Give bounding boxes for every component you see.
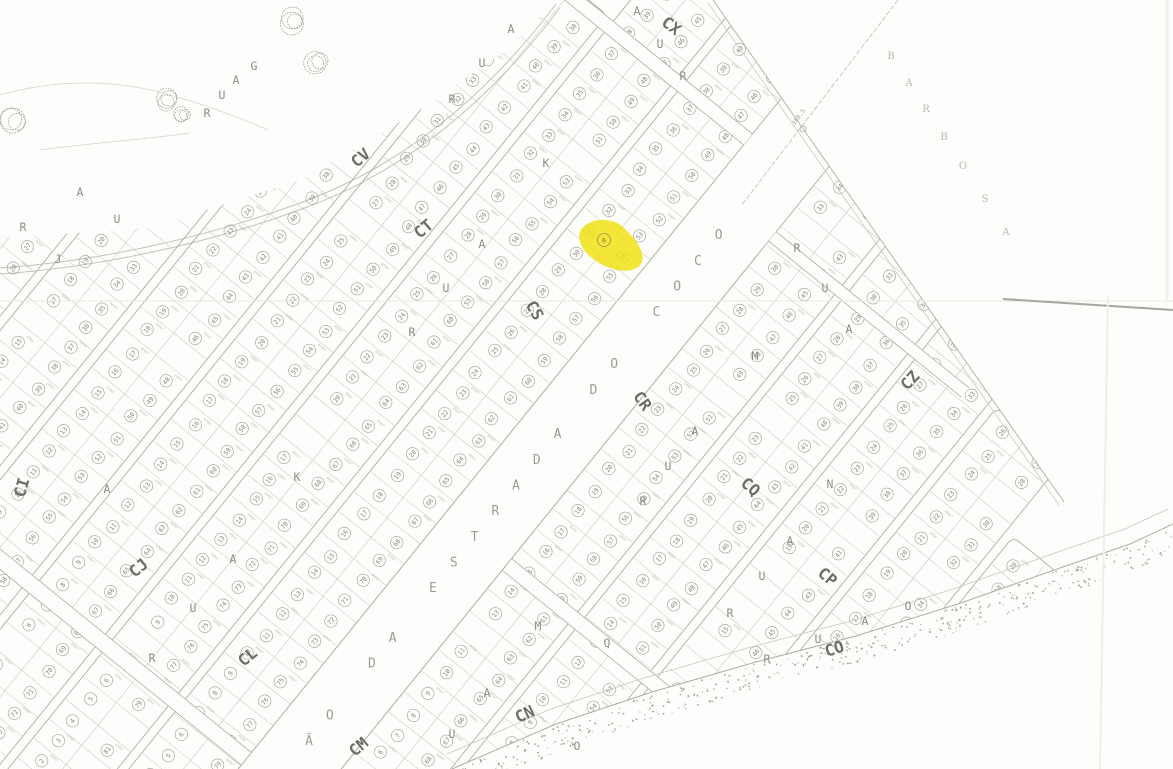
street-name-letter: A bbox=[484, 686, 491, 700]
street-name-letter: G bbox=[251, 59, 258, 73]
street-name-letter: U bbox=[665, 459, 672, 473]
road-name-letter: T bbox=[471, 530, 479, 545]
street-name-letter: A bbox=[692, 424, 699, 438]
scanned-cadastral-map: 1600m²44600m²243600m²4600m²415600m²40600… bbox=[0, 0, 1173, 769]
street-name-letter: U bbox=[822, 281, 829, 295]
street-name-letter: K bbox=[543, 156, 550, 170]
street-name-letter: M bbox=[752, 349, 759, 363]
road-name-letter: C bbox=[652, 305, 660, 320]
street-name-letter: A bbox=[233, 73, 240, 87]
street-name-letter: R bbox=[794, 241, 801, 255]
street-name-letter: U bbox=[657, 37, 664, 51]
road-name-letter: D bbox=[533, 453, 541, 468]
street-name-letter: R bbox=[204, 106, 211, 120]
street-name-letter: R bbox=[149, 651, 156, 665]
street-name-letter: O bbox=[574, 739, 581, 753]
street-name-letter: A bbox=[787, 534, 794, 548]
road-name-letter: A bbox=[512, 478, 520, 493]
barbosa-letter: S bbox=[982, 194, 989, 205]
road-name-letter: S bbox=[450, 555, 458, 570]
street-name-letter: R bbox=[764, 652, 771, 666]
street-name-letter: R bbox=[409, 325, 416, 339]
street-name-letter: N bbox=[827, 477, 834, 491]
street-name-letter: U bbox=[190, 601, 197, 615]
street-name-letter: R bbox=[449, 92, 456, 106]
street-name-letter: U bbox=[479, 56, 486, 70]
cadastral-map: 1600m²44600m²243600m²4600m²415600m²40600… bbox=[0, 0, 1173, 769]
street-name-letter: U bbox=[443, 281, 450, 295]
road-name-letter: A bbox=[554, 427, 562, 442]
street-name-letter: A bbox=[846, 322, 853, 336]
map-canvas: 1600m²44600m²243600m²4600m²415600m²40600… bbox=[0, 0, 1173, 769]
street-name-letter: O bbox=[905, 599, 912, 613]
road-name-letter: O bbox=[326, 709, 334, 724]
road-name-letter: C bbox=[694, 254, 702, 269]
street-name-letter: U bbox=[114, 212, 121, 226]
street-name-letter: A bbox=[634, 4, 641, 18]
road-name-letter: Ã bbox=[305, 733, 313, 749]
street-name-letter: A bbox=[104, 482, 111, 496]
road-name-letter: D bbox=[368, 656, 376, 671]
barbosa-letter: A bbox=[904, 78, 913, 89]
street-name-letter: R bbox=[640, 494, 647, 508]
barbosa-letter: A bbox=[1001, 227, 1010, 238]
barbosa-letter: R bbox=[922, 104, 930, 115]
street-name-letter: A bbox=[77, 185, 84, 199]
street-name-letter: U bbox=[759, 569, 766, 583]
highlighted-lot-number: 6 bbox=[602, 236, 606, 244]
road-name-letter: R bbox=[491, 504, 499, 519]
street-name-letter: U bbox=[815, 632, 822, 646]
street-name-letter: A bbox=[230, 552, 237, 566]
street-name-letter: J bbox=[55, 252, 62, 266]
street-name-letter: A bbox=[862, 614, 869, 628]
barbosa-letter: B bbox=[940, 132, 947, 143]
street-name-letter: U bbox=[219, 88, 226, 102]
street-name-letter: A bbox=[508, 22, 515, 36]
street-name-letter: A bbox=[479, 237, 486, 251]
street-name-letter: R bbox=[680, 69, 687, 83]
barbosa-letter: B bbox=[887, 51, 894, 62]
road-name-letter: O bbox=[715, 228, 723, 243]
barbosa-letter: O bbox=[959, 161, 967, 172]
road-name-letter: O bbox=[673, 280, 681, 295]
street-name-letter: R bbox=[727, 606, 734, 620]
road-name-letter: D bbox=[590, 383, 598, 398]
road-name-letter: A bbox=[389, 631, 397, 646]
street-name-letter: Q bbox=[604, 636, 611, 650]
road-name-letter: O bbox=[610, 357, 618, 372]
street-name-letter: U bbox=[449, 727, 456, 741]
street-name-letter: M bbox=[535, 619, 542, 633]
street-name-letter: K bbox=[294, 470, 301, 484]
road-name-letter: E bbox=[429, 581, 437, 596]
street-name-letter: R bbox=[20, 220, 27, 234]
